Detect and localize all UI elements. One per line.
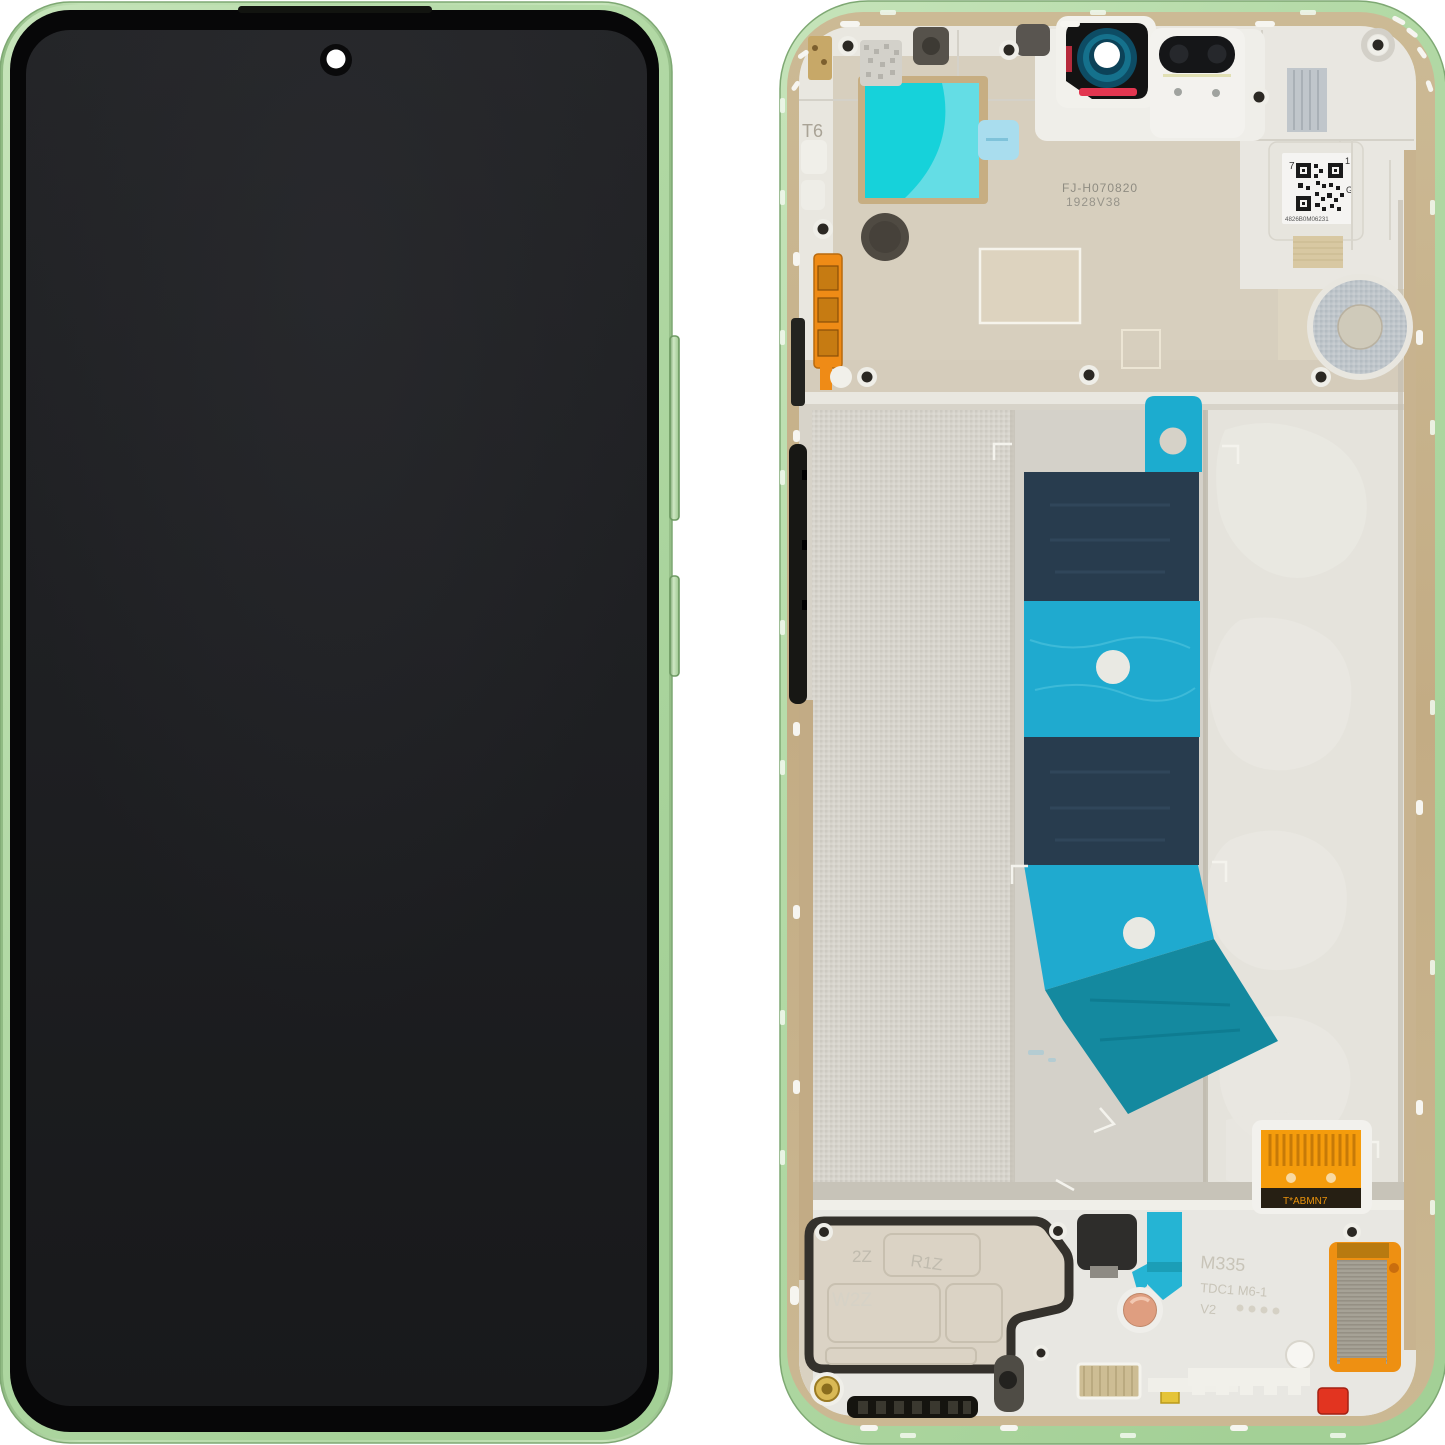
svg-text:T6: T6 [802,121,823,141]
svg-text:FJ-H070820: FJ-H070820 [1062,181,1138,195]
svg-text:V2: V2 [1200,1301,1217,1317]
svg-text:W2Z: W2Z [832,1290,873,1311]
svg-text:M335: M335 [1200,1252,1246,1275]
svg-text:4826B0M06231: 4826B0M06231 [1285,216,1329,223]
svg-text:1: 1 [1345,156,1350,166]
svg-text:T*ABMN7: T*ABMN7 [1283,1196,1328,1207]
svg-text:2Z: 2Z [852,1247,872,1266]
svg-text:7: 7 [1289,161,1295,172]
svg-text:1928V38: 1928V38 [1066,195,1121,209]
